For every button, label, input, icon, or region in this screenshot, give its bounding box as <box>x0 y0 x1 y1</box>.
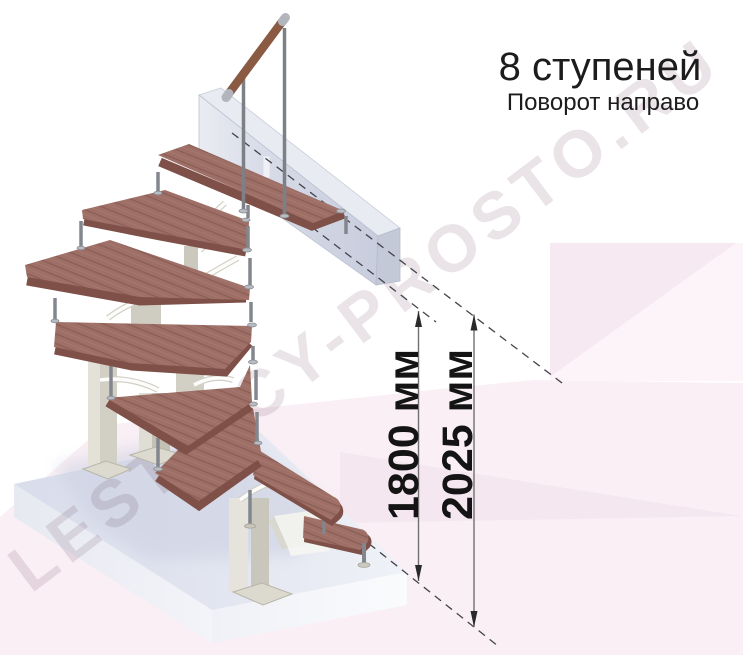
svg-text:2025 мм: 2025 мм <box>434 349 482 520</box>
svg-text:Поворот направо: Поворот направо <box>507 89 699 116</box>
svg-text:1800 мм: 1800 мм <box>380 349 428 520</box>
svg-text:8 ступеней: 8 ступеней <box>499 45 702 89</box>
